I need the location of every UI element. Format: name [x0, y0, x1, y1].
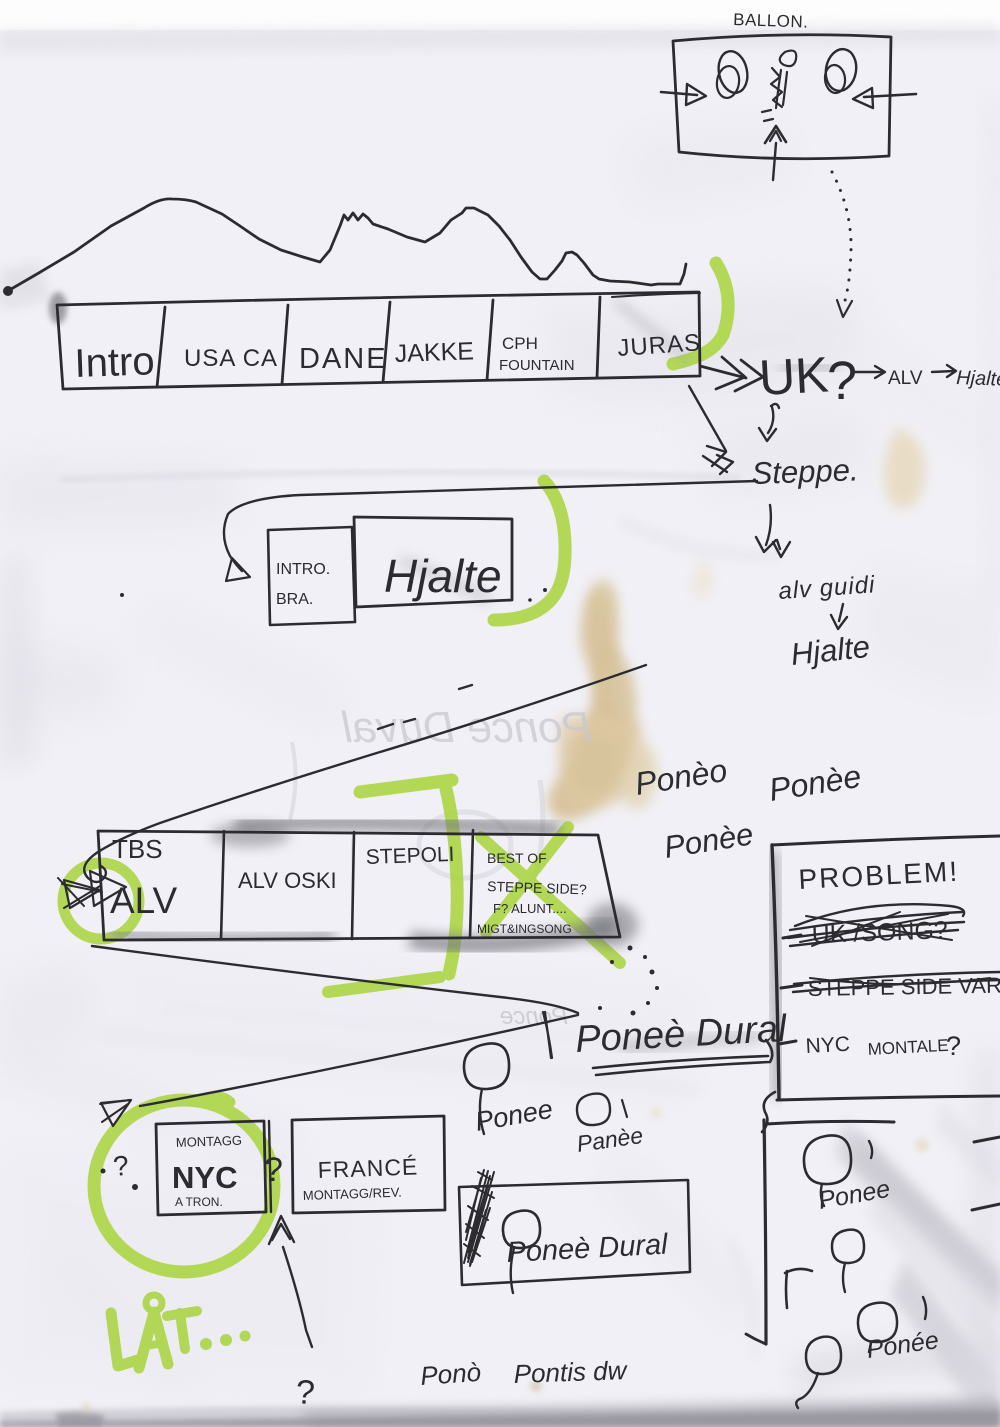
svg-text:UK: UK: [758, 346, 830, 406]
svg-text:Steppe.: Steppe.: [751, 452, 859, 491]
svg-text:ALV OSKI: ALV OSKI: [238, 868, 337, 893]
svg-text:BEST OF: BEST OF: [487, 850, 547, 866]
svg-text:MIGT&INGSONG: MIGT&INGSONG: [477, 922, 572, 936]
svg-text:Hjalte.: Hjalte.: [956, 367, 1000, 391]
svg-text:UK /SONG?: UK /SONG?: [811, 916, 948, 949]
svg-text:?: ?: [946, 1031, 961, 1061]
svg-text:?: ?: [294, 1373, 316, 1412]
svg-text:FRANCÉ: FRANCÉ: [317, 1154, 418, 1183]
svg-text:?: ?: [264, 1151, 283, 1189]
svg-text:Ponò: Ponò: [419, 1357, 482, 1391]
svg-text:STEPPE SIDE VAR: STEPPE SIDE VAR: [808, 973, 1000, 1001]
svg-text:F? ALUNT....: F? ALUNT....: [493, 901, 567, 916]
svg-text:JAKKE: JAKKE: [394, 337, 474, 368]
svg-text:Hjalte: Hjalte: [384, 550, 502, 602]
svg-text:TBS: TBS: [112, 834, 163, 864]
svg-text:DANE: DANE: [299, 343, 388, 375]
svg-text:FOUNTAIN: FOUNTAIN: [499, 357, 575, 374]
svg-text:Intro: Intro: [74, 339, 156, 386]
svg-text:STEPOLI: STEPOLI: [365, 843, 454, 869]
svg-text:CPH: CPH: [502, 334, 538, 353]
svg-text:?: ?: [827, 351, 857, 411]
svg-text:INTRO.: INTRO.: [276, 561, 330, 578]
svg-text:BRA.: BRA.: [276, 591, 313, 608]
svg-text:NYC: NYC: [172, 1160, 237, 1195]
svg-text:NYC: NYC: [805, 1033, 850, 1058]
svg-text:USA CA: USA CA: [184, 345, 278, 372]
svg-text:A TRON.: A TRON.: [175, 1195, 223, 1209]
svg-text:MONTAGG: MONTAGG: [176, 1133, 243, 1150]
svg-text:Pontis dw: Pontis dw: [513, 1355, 629, 1389]
svg-text:?: ?: [112, 1150, 130, 1182]
svg-text:ALV: ALV: [888, 368, 923, 389]
svg-text:BALLON.: BALLON.: [733, 10, 809, 32]
svg-text:ALV: ALV: [110, 880, 178, 921]
